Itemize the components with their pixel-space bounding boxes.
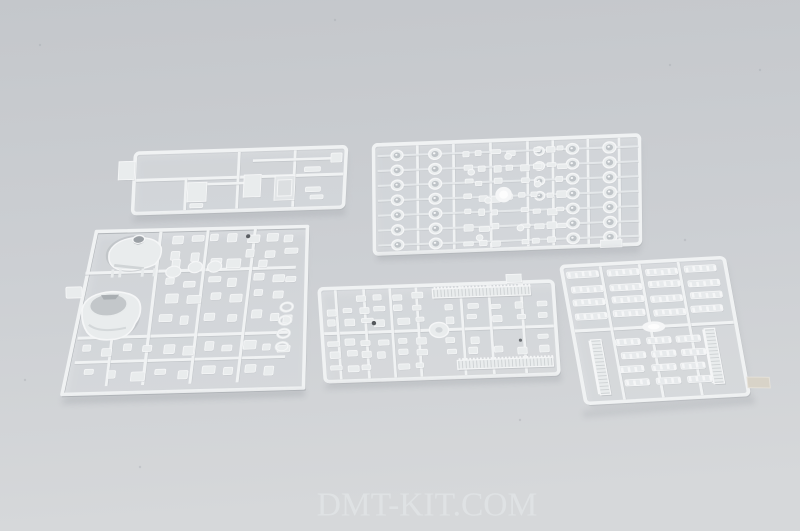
svg-text:DMT-KIT.COM: DMT-KIT.COM xyxy=(317,487,538,524)
